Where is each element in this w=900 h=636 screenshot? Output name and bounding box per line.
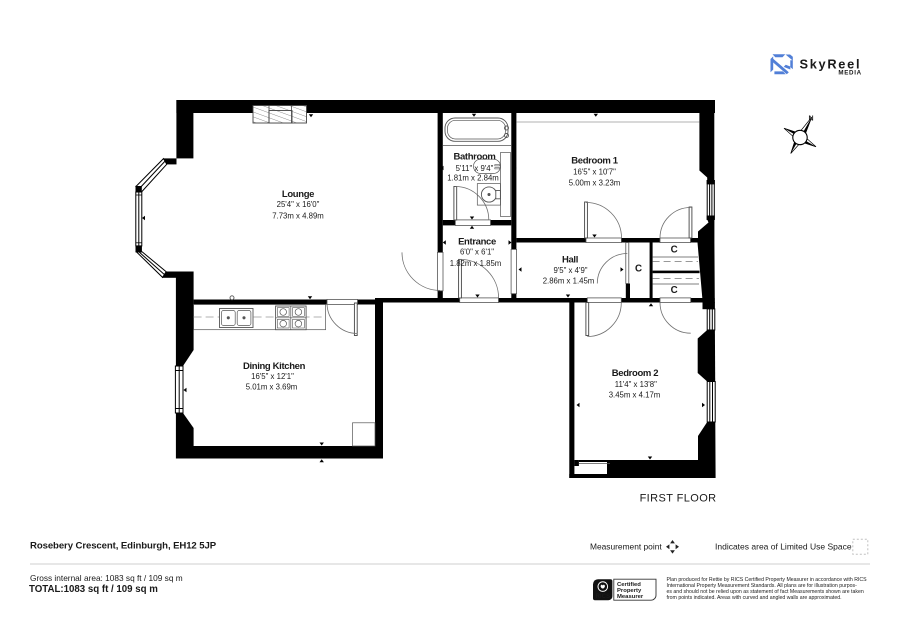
svg-text:5.01m x 3.69m: 5.01m x 3.69m [246, 382, 298, 391]
svg-text:Property: Property [617, 588, 642, 594]
svg-text:5.00m x 3.23m: 5.00m x 3.23m [569, 178, 621, 187]
svg-text:5'11" x 9'4": 5'11" x 9'4" [456, 164, 494, 173]
svg-text:Certified: Certified [617, 582, 641, 588]
svg-text:16'5" x 10'7": 16'5" x 10'7" [573, 167, 616, 176]
svg-text:Bathroom: Bathroom [453, 152, 495, 163]
svg-text:Measurer: Measurer [617, 594, 644, 600]
svg-text:C: C [671, 245, 678, 256]
svg-text:2.86m x 1.45m: 2.86m x 1.45m [543, 276, 595, 285]
svg-text:Rosebery Crescent, Edinburgh,: Rosebery Crescent, Edinburgh, EH12 5JP [30, 541, 217, 552]
svg-text:Bedroom 1: Bedroom 1 [571, 156, 619, 167]
svg-text:C: C [671, 285, 678, 296]
svg-text:9'5" x 4'9": 9'5" x 4'9" [553, 266, 587, 275]
svg-text:RICS: RICS [596, 593, 611, 600]
svg-text:Entrance: Entrance [458, 237, 496, 248]
svg-text:1.81m x 2.84m: 1.81m x 2.84m [447, 173, 499, 182]
svg-text:MEDIA: MEDIA [838, 70, 861, 77]
svg-text:11'4" x 13'8": 11'4" x 13'8" [615, 380, 657, 389]
svg-text:Lounge: Lounge [282, 189, 314, 200]
svg-text:7.73m x 4.89m: 7.73m x 4.89m [272, 211, 324, 220]
svg-text:3.45m x 4.17m: 3.45m x 4.17m [609, 391, 661, 400]
svg-text:6'0" x 6'1": 6'0" x 6'1" [460, 248, 494, 257]
svg-text:FIRST FLOOR: FIRST FLOOR [640, 493, 717, 505]
svg-text:TOTAL:1083 sq ft / 109 sq m: TOTAL:1083 sq ft / 109 sq m [29, 584, 158, 595]
svg-text:1.82m x 1.85m: 1.82m x 1.85m [450, 259, 502, 268]
svg-text:Measurement point: Measurement point [590, 542, 662, 552]
svg-text:Hall: Hall [562, 255, 578, 266]
svg-text:Bedroom 2: Bedroom 2 [612, 368, 659, 379]
svg-text:16'5" x 12'1": 16'5" x 12'1" [251, 372, 294, 381]
svg-text:25'4" x 16'0": 25'4" x 16'0" [277, 200, 320, 209]
svg-text:Gross internal area: 1083 sq f: Gross internal area: 1083 sq ft / 109 sq… [30, 573, 183, 583]
svg-text:Indicates area of Limited Use: Indicates area of Limited Use Space [715, 542, 852, 552]
svg-text:Dining Kitchen: Dining Kitchen [243, 361, 306, 372]
svg-text:N: N [809, 116, 814, 123]
svg-text:C: C [635, 263, 642, 274]
svg-text:from points indicated. Areas w: from points indicated. Areas with curved… [667, 595, 842, 601]
